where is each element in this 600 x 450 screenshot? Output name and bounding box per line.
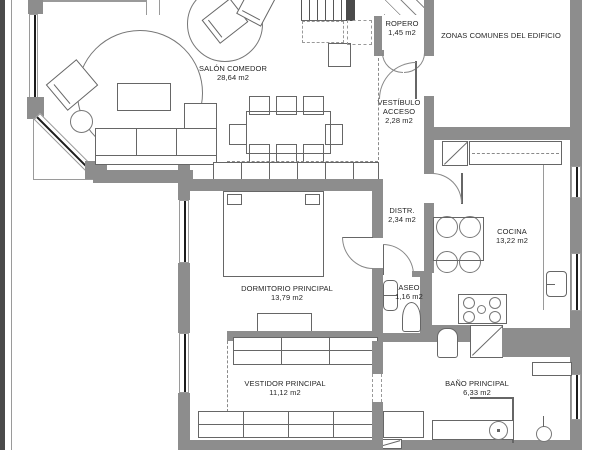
overhead-dashed-outline (302, 21, 344, 43)
room-area: 2,28 m2 (369, 116, 429, 125)
window (29, 14, 38, 98)
room-area: 11,12 m2 (210, 388, 360, 397)
column-box (328, 43, 351, 67)
kitchen-sink (546, 271, 567, 297)
room-name: DORMITORIO PRINCIPAL (207, 284, 367, 293)
wall (346, 0, 355, 21)
wardrobe-row (233, 337, 378, 365)
room-area: 13,79 m2 (207, 293, 367, 302)
window-glass (184, 334, 186, 392)
dining-chair (229, 124, 247, 145)
room-label-dormitorio: DORMITORIO PRINCIPAL 13,79 m2 (207, 284, 367, 302)
bath-partition (470, 397, 514, 399)
sofa-cushion-line (136, 129, 137, 155)
bath-shelf (532, 362, 572, 376)
plot-boundary-line (0, 0, 5, 450)
room-area: 13,22 m2 (477, 236, 547, 245)
stove-burner (463, 297, 475, 309)
wall (372, 268, 383, 335)
wall (178, 163, 190, 200)
bidet-line (543, 416, 544, 427)
wardrobe-shelf-line (234, 350, 377, 351)
window (179, 333, 189, 393)
window (179, 200, 189, 263)
room-label-vestibulo: VESTÍBULO ACCESO 2,28 m2 (369, 98, 429, 125)
room-name: ROPERO (371, 19, 433, 28)
stove-center (477, 305, 486, 314)
top-wall-line (159, 0, 160, 15)
room-label-zonas-comunes: ZONAS COMUNES DEL EDIFICIO (416, 31, 586, 40)
wall (372, 402, 383, 450)
bath-door-opening (372, 374, 382, 402)
room-area: 28,64 m2 (158, 73, 308, 82)
room-label-salon-comedor: SALÓN COMEDOR 28,64 m2 (158, 64, 308, 82)
wardrobe-row (213, 162, 379, 180)
kitchen-counter (469, 141, 562, 165)
wall (372, 341, 383, 374)
shower-tray (383, 411, 424, 438)
stairs-hatch (384, 0, 424, 15)
overhead-dashed-outline (347, 20, 372, 45)
stove-burner (489, 297, 501, 309)
faucet (547, 284, 555, 285)
open-boundary-dashed (227, 341, 228, 412)
wall (502, 328, 572, 357)
coffee-table (117, 83, 171, 111)
wardrobe-shelf-line (199, 424, 378, 425)
toilet (402, 302, 421, 332)
wall (28, 0, 43, 14)
room-name: ZONAS COMUNES DEL EDIFICIO (416, 31, 586, 40)
window-glass (576, 254, 578, 310)
room-name: SALÓN COMEDOR (158, 64, 308, 73)
window-glass (184, 201, 186, 262)
washbasin-drain (497, 429, 500, 432)
terrace-outline (33, 179, 95, 180)
room-label-bano: BAÑO PRINCIPAL 6,33 m2 (407, 379, 547, 397)
dining-table (246, 111, 331, 154)
sofa-cushion-line (176, 129, 177, 155)
room-name: ACCESO (369, 107, 429, 116)
counter-dashed-line (472, 153, 559, 154)
wardrobe-row (198, 411, 379, 438)
stove-burner (463, 311, 475, 323)
stove-burner (489, 311, 501, 323)
sofa-backrest-line (96, 155, 216, 156)
bedroom-door-arc (342, 237, 373, 269)
armchair-line (54, 84, 71, 104)
wall (424, 127, 572, 140)
room-area: 2,34 m2 (377, 215, 427, 224)
wall (190, 179, 383, 191)
bed-pillow (227, 194, 242, 205)
room-name: VESTÍBULO (369, 98, 429, 107)
room-name: DISTR. (377, 206, 427, 215)
bidet (536, 426, 552, 442)
room-label-vestidor: VESTIDOR PRINCIPAL 11,12 m2 (210, 379, 360, 397)
room-area: 1,16 m2 (388, 292, 430, 301)
top-wall-line (146, 0, 147, 15)
room-name: BAÑO PRINCIPAL (407, 379, 547, 388)
wall (412, 271, 424, 277)
top-wall-line (43, 0, 147, 2)
window-glass (576, 375, 578, 419)
room-name: ASEO (388, 283, 430, 292)
room-label-distribuidor: DISTR. 2,34 m2 (377, 206, 427, 224)
kitchen-door-arc (432, 173, 462, 203)
wall (178, 263, 190, 333)
side-table-round (70, 110, 93, 133)
window-glass (576, 167, 578, 197)
window (571, 253, 581, 311)
room-name: VESTIDOR PRINCIPAL (210, 379, 360, 388)
bed-pillow (305, 194, 320, 205)
sofa (95, 128, 217, 165)
terrace-outline (33, 118, 34, 180)
aseo-door-arc (383, 244, 414, 275)
room-label-cocina: COCINA 13,22 m2 (477, 227, 547, 245)
floor-plan: SALÓN COMEDOR 28,64 m2 ROPERO 1,45 m2 ZO… (0, 0, 600, 450)
entry-door-arc (379, 62, 416, 99)
window (571, 166, 581, 198)
room-label-aseo: ASEO 1,16 m2 (388, 283, 430, 301)
room-area: 6,33 m2 (407, 388, 547, 397)
facade-outline (11, 0, 12, 450)
window (571, 374, 581, 420)
wall (424, 140, 434, 174)
room-name: COCINA (477, 227, 547, 236)
window-glass (34, 15, 36, 97)
sofa-chaise (184, 103, 217, 130)
bath-fixture (437, 328, 458, 358)
stairs-hatch (301, 0, 346, 21)
